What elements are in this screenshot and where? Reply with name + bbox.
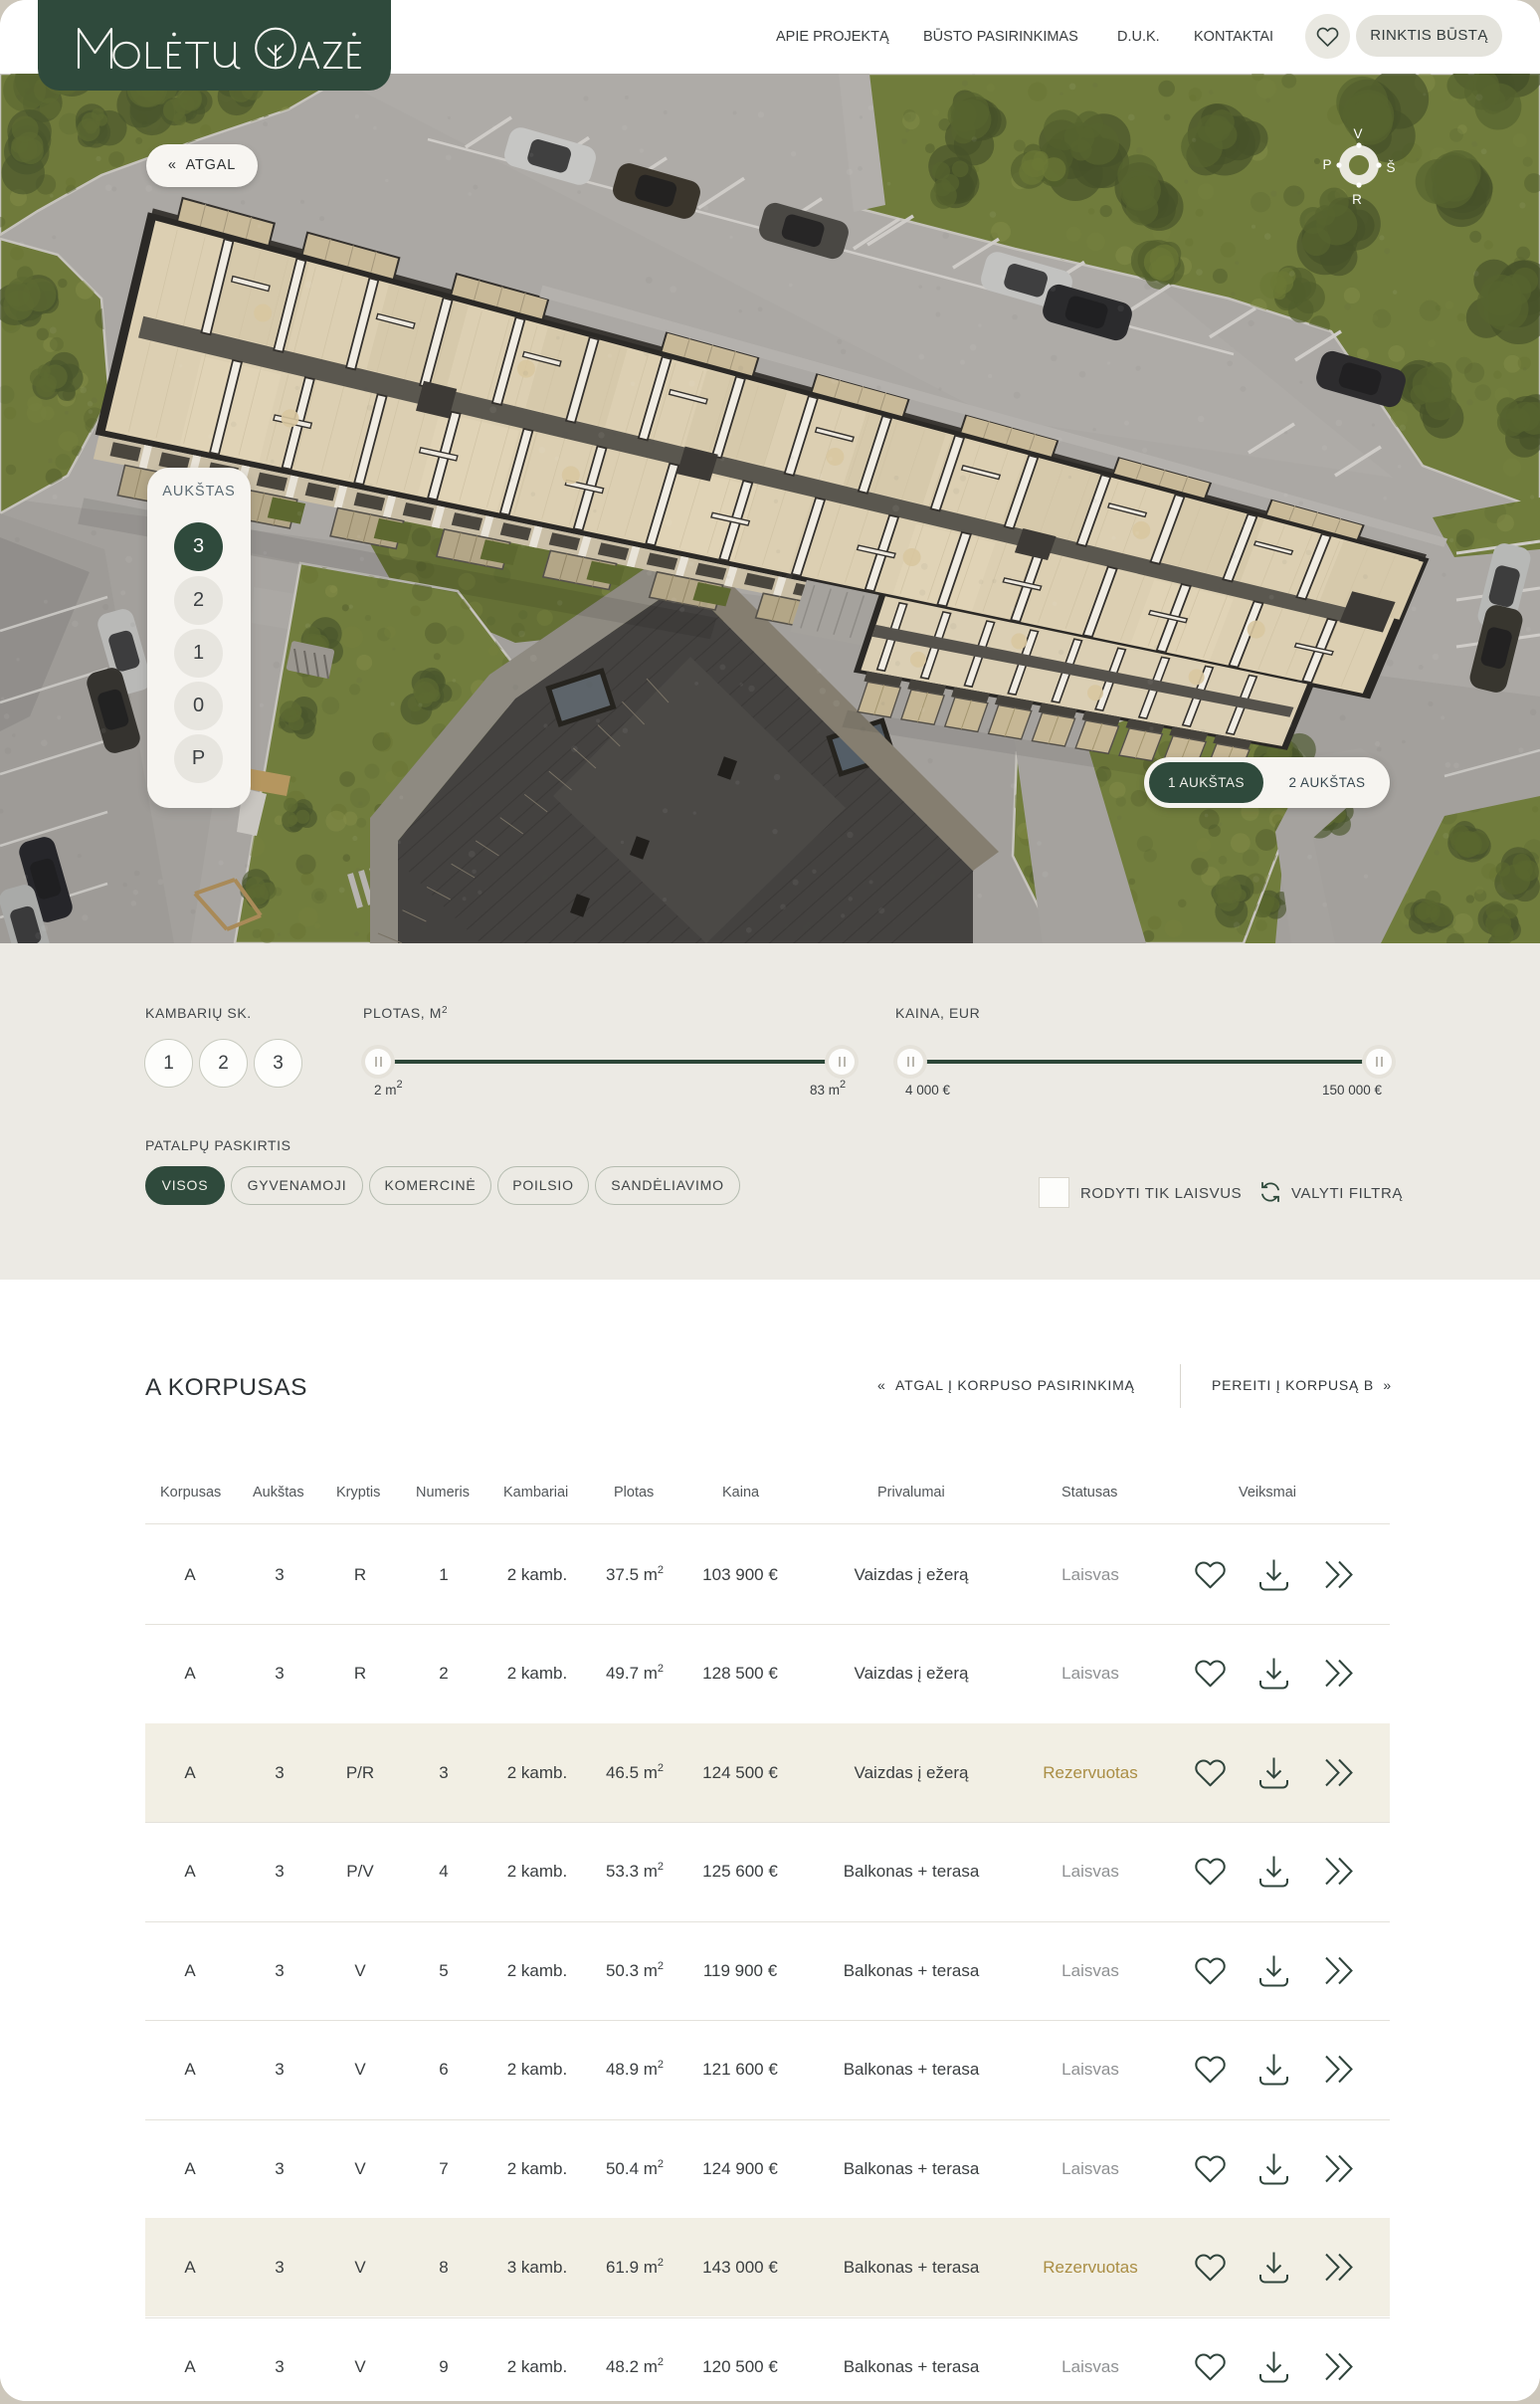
svg-text:V: V [1353, 126, 1362, 141]
svg-text:P: P [1322, 157, 1331, 172]
svg-text:R: R [1352, 192, 1362, 207]
svg-text:Š: Š [1386, 160, 1395, 175]
